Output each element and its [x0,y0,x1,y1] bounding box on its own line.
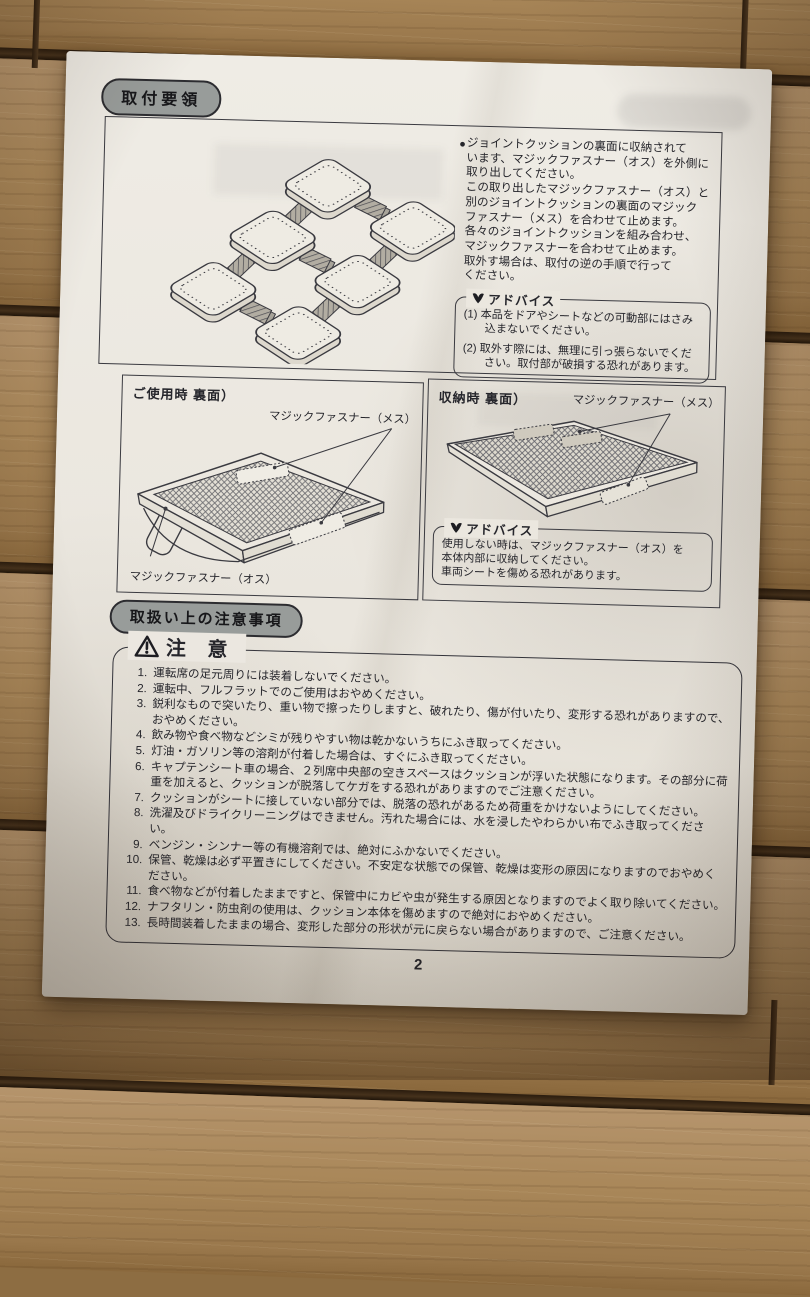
storage-advice-text: 使用しない時は、マジックファスナー（オス）を 本体内部に収納してください。 車両… [441,537,704,586]
install-instructions-text: ジョイントクッションの裏面に収納されて います、マジックファスナー（オス）を外側… [463,136,710,289]
caution-item-number: 13. [117,914,141,930]
caution-box: 注 意 1.運転席の足元周りには装着しないでください。 2.運転中、フルフラット… [105,646,743,958]
install-box: ● ジョイントクッションの裏面に収納されて います、マジックファスナー（オス）を… [98,116,722,380]
advice-box-install: アドバイス (1) 本品をドアやシートなどの可動部にはさみ込まないでください。 … [453,296,711,383]
precautions-section-title: 取扱い上の注意事項 [129,609,282,630]
joint-cushions-diagram [101,121,457,368]
advice-legend: アドバイス [466,289,561,310]
caution-item-number: 2. [123,680,147,696]
advice-item: (2) 取外す際には、無理に引っ張らないでください。取付部が破損する恐れがありま… [462,342,701,376]
caution-item-number: 10. [118,852,143,884]
caution-legend: 注 意 [128,631,246,663]
advice-icon [449,521,463,535]
wood-plank [0,1084,810,1297]
caution-item-number: 8. [119,805,144,837]
photo-of-manual: { "page_number": "2", "colors": { "paper… [0,0,810,1080]
storage-diagram-drawing [427,406,722,524]
install-section-title: 取付要領 [121,90,201,109]
caution-item-number: 9. [119,836,143,852]
caution-item-number: 12. [117,898,141,914]
show-through-ghost [617,93,752,130]
advice-title: アドバイス [466,519,534,540]
advice-legend: アドバイス [444,518,539,539]
caution-item-number: 4. [121,727,145,743]
storage-diagram-box: 収納時 裏面） マジックファスナー（メス） [422,378,726,608]
caution-item-number: 6. [120,758,145,790]
warning-triangle-icon [134,633,161,658]
caution-item-number: 1. [123,665,147,681]
caution-items-list: 1.運転席の足元周りには装着しないでください。 2.運転中、フルフラットでのご使… [106,647,741,951]
advice-icon [471,291,485,305]
caution-title: 注 意 [166,632,236,663]
advice-box-storage: アドバイス 使用しない時は、マジックファスナー（オス）を 本体内部に収納してくだ… [432,526,713,592]
advice-item: (1) 本品をドアやシートなどの可動部にはさみ込まないでください。 [463,308,702,342]
install-instructions: ● ジョイントクッションの裏面に収納されて います、マジックファスナー（オス）を… [456,136,716,290]
advice-title: アドバイス [488,289,556,310]
velcro-female-label: マジックファスナー（メス） [572,391,719,411]
use-diagram-drawing [120,420,420,570]
caution-item-number: 3. [122,696,147,728]
use-diagram-title: ご使用時 裏面） [132,383,235,405]
caution-item-number: 11. [117,883,141,899]
use-diagram-box: ご使用時 裏面） マジックファスナー（メス） [116,374,424,600]
velcro-male-label: マジックファスナー（オス） [130,568,277,588]
caution-item-number: 5. [121,743,145,759]
storage-diagram-title: 収納時 裏面） [438,387,527,408]
paper-sheet: 取付要領 [42,51,773,1015]
install-section-heading-pill: 取付要領 [101,78,222,118]
caution-item-number: 7. [120,789,144,805]
